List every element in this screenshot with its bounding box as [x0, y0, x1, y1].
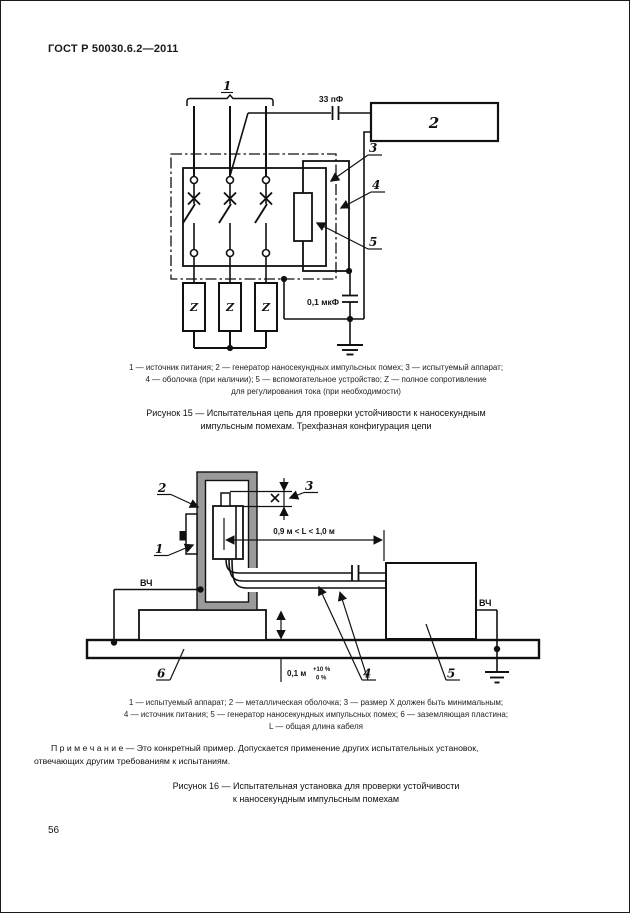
- cable-length-value: 0,9 м < L < 1,0 м: [273, 527, 335, 536]
- breaker-pole-1: [183, 177, 200, 284]
- impedance-z1: Z: [189, 301, 199, 314]
- eut-top-box: [221, 493, 230, 506]
- ground-plane: [87, 640, 539, 658]
- figure15-title: Рисунок 15 — Испытательная цепь для пров…: [1, 407, 630, 433]
- impedance-boxes: [183, 283, 277, 348]
- label-5: 5: [447, 667, 455, 681]
- eut-box: [213, 506, 243, 559]
- tolerance-plus: +10 %: [313, 667, 331, 673]
- auxiliary-device: [294, 193, 312, 241]
- height-value: 0,1 м: [287, 669, 306, 678]
- label-1: 1: [223, 79, 231, 93]
- figure16-diagram: 0,9 м < L < 1,0 м ВЧ ВЧ: [1, 461, 630, 696]
- standard-header: ГОСТ Р 50030.6.2—2011: [48, 43, 179, 55]
- figure15-diagram: 1 33 пФ 2: [1, 71, 630, 366]
- page-number: 56: [48, 825, 59, 836]
- label-3: 3: [369, 141, 377, 155]
- pedestal: [139, 610, 266, 640]
- label-4: 4: [372, 178, 380, 192]
- feedthrough-icon: [180, 531, 187, 541]
- figure16-legend: 1 — испытуемый аппарат; 2 — металлическа…: [1, 697, 630, 733]
- impedance-z2: Z: [225, 301, 235, 314]
- hf-right-label: ВЧ: [479, 598, 491, 608]
- supply-bracket: [187, 93, 273, 107]
- figure15-legend: 1 — источник питания; 2 — генератор нано…: [1, 362, 630, 398]
- label-5: 5: [369, 235, 377, 249]
- earth-ground-icon: [337, 345, 363, 355]
- breaker-pole-2: [219, 177, 236, 284]
- figure16-title: Рисунок 16 — Испытательная установка для…: [1, 780, 630, 806]
- hf-left-label: ВЧ: [140, 578, 152, 588]
- junction-dot: [228, 346, 233, 351]
- label-1: 1: [155, 542, 163, 556]
- coupling-capacitor-value: 33 пФ: [319, 94, 343, 104]
- generator-box: [386, 563, 476, 639]
- generator-return-line: [364, 132, 371, 319]
- ground-capacitor-value: 0,1 мкФ: [307, 297, 339, 307]
- impedance-z3: Z: [261, 301, 271, 314]
- tolerance-zero: 0 %: [316, 676, 327, 682]
- label-4: 4: [363, 667, 371, 681]
- earth-ground-icon: [485, 672, 509, 683]
- wall-connector: [186, 514, 197, 554]
- label-6: 6: [157, 667, 166, 681]
- note-paragraph: П р и м е ч а н и е — Это конкретный при…: [34, 742, 601, 768]
- label-2: 2: [428, 114, 439, 132]
- label-3: 3: [305, 479, 313, 493]
- label-2: 2: [157, 481, 166, 495]
- breaker-pole-3: [255, 177, 272, 284]
- phase-lines: [194, 106, 266, 177]
- document-page: ГОСТ Р 50030.6.2—2011 1: [0, 0, 630, 913]
